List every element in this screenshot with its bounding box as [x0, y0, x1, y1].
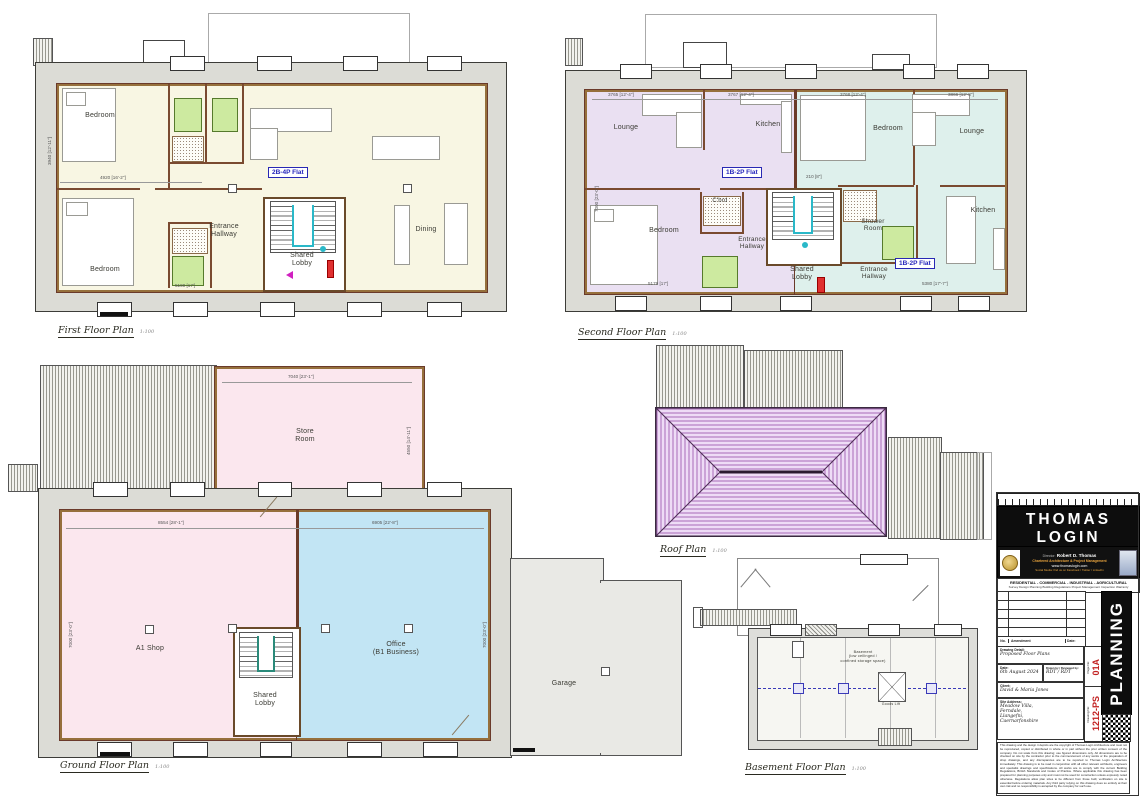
plan-caption: First Floor Plan1:100 [58, 325, 154, 336]
wall [940, 185, 1005, 187]
social-line: Social Media: find us on Facebook / Twit… [1020, 569, 1119, 573]
amendment-row [998, 610, 1085, 619]
room-label: C'brd [698, 198, 742, 205]
caption-scale: 1:100 [712, 548, 726, 554]
wall [916, 185, 918, 262]
window [780, 296, 812, 311]
drawing-sheet: Bedroom Bedroom Entrance Hallway Shared … [0, 0, 1142, 800]
bathroom-unit [212, 98, 238, 132]
dimension: 5190 [17'] [175, 283, 195, 288]
window [903, 64, 935, 79]
dimension: 210 [8"] [806, 174, 822, 179]
column [926, 683, 937, 694]
field-value: Proposed Floor Plans [1000, 652, 1081, 657]
room-label: A1 Shop [115, 645, 185, 653]
room-label: Bedroom [70, 112, 130, 120]
fire-alarm-icon [286, 271, 293, 279]
services: Survey Design Planning Building Regulati… [998, 585, 1139, 589]
adjacent-outline [977, 452, 992, 540]
door-opening [258, 482, 292, 497]
basement-note: Basement (low ceilinged / confined stora… [818, 650, 908, 663]
plan-caption: Roof Plan1:100 [660, 544, 727, 555]
basement-window [868, 624, 900, 636]
threshold [513, 748, 535, 752]
door-opening [260, 742, 292, 757]
window [347, 482, 382, 497]
stair-flight [257, 636, 275, 672]
window [423, 742, 458, 757]
drawing-no: 1212-PS [1091, 696, 1101, 731]
dimension: 7000 [23'-0"] [68, 622, 73, 648]
external-steps [8, 464, 38, 492]
bed [800, 95, 866, 161]
dim-line [222, 382, 412, 383]
room-label: Store Room [275, 428, 335, 444]
dimension: 6905 [22'-8"] [372, 520, 398, 525]
window [347, 742, 382, 757]
flat-type-badge: 1B-2P Flat [895, 258, 935, 269]
window [620, 64, 652, 79]
stair-landing [693, 607, 703, 628]
firm-name: THOMAS LOGIN [998, 511, 1139, 547]
amendment-row [998, 601, 1085, 610]
goods-lift [878, 672, 906, 702]
room-label: Shared Lobby [237, 692, 293, 708]
caption-scale: 1:100 [140, 329, 154, 335]
crest-icon [1119, 550, 1137, 576]
stair-flight [793, 196, 813, 234]
field-value: Meadow Villa, Ferndale, Llangefni, Caern… [1000, 704, 1081, 724]
basement-window [770, 624, 802, 636]
external-stack [565, 38, 583, 66]
dimension: 3940 [12'-11"] [47, 137, 52, 165]
caption-title: Basement Floor Plan [745, 762, 846, 775]
adjacent-roof [656, 345, 744, 409]
window [785, 64, 817, 79]
director-label: Director: [1043, 554, 1056, 558]
wall [168, 162, 244, 164]
drawn-field: Drawn by / Reviewed by: RDT / RDT [1043, 664, 1084, 682]
window [257, 56, 292, 71]
roof-outline [208, 13, 410, 65]
window [427, 56, 462, 71]
col-date: Date: [1066, 639, 1085, 643]
dimension: 5179 [17'] [648, 281, 668, 286]
lift-label: Goods Lift [866, 702, 916, 706]
dimension: 3765 [12'-4"] [608, 92, 634, 97]
amendment-table: No. Amendment Date: [997, 591, 1086, 648]
gold-seal-icon [1002, 555, 1018, 571]
wall [205, 84, 207, 162]
sofa [676, 112, 702, 148]
wall [168, 84, 170, 188]
window [170, 482, 205, 497]
adjacent-roof [744, 350, 843, 409]
amendment-row [998, 592, 1085, 601]
room-label: Shower Room [848, 218, 898, 233]
dimension: 5380 [17'-7"] [922, 281, 948, 286]
plan-caption: Second Floor Plan1:100 [578, 327, 687, 338]
firm-info: Director: Robert D. Thomas Chartered Arc… [997, 546, 1140, 580]
window [615, 296, 647, 311]
room-label: Kitchen [746, 121, 790, 129]
caption-title: First Floor Plan [58, 325, 134, 338]
hipped-roof [655, 407, 887, 537]
fuse-box [792, 641, 804, 658]
column-marker [403, 184, 412, 193]
blocked-opening [805, 624, 837, 636]
amendment-row [998, 619, 1085, 628]
room-label: Entrance Hallway [846, 266, 902, 281]
wall [57, 188, 140, 190]
drawing-no-label: Drawing No: [1086, 706, 1090, 723]
sofa [372, 136, 440, 160]
adjacent-roof [888, 437, 942, 539]
wall [838, 185, 914, 187]
wall [155, 188, 262, 190]
wall [585, 188, 700, 190]
wall [720, 188, 766, 190]
bathroom-unit [172, 256, 204, 286]
caption-title: Ground Floor Plan [60, 760, 149, 773]
room-label: Office (B1 Business) [358, 641, 434, 657]
wall [242, 84, 244, 162]
shower-tray [172, 136, 204, 162]
room-label: Garage [532, 680, 596, 688]
column-marker [601, 667, 610, 676]
room-label: Entrance Hallway [726, 236, 778, 251]
qr-code [1102, 714, 1131, 742]
caption-scale: 1:100 [155, 764, 169, 770]
sensor-dot [802, 242, 808, 248]
caption-title: Roof Plan [660, 544, 706, 557]
sideboard [394, 205, 410, 265]
scale-ruler [997, 493, 1140, 506]
column-marker [145, 625, 154, 634]
room-label: Kitchen [958, 207, 1008, 215]
wall [168, 222, 170, 288]
window [173, 302, 208, 317]
bathroom-unit [174, 98, 202, 132]
dimension: 7000 [23'-0"] [594, 186, 599, 212]
window [700, 296, 732, 311]
column-marker [228, 624, 237, 633]
dimension: 4550 [14'-11"] [406, 427, 411, 455]
firm-banner: THOMAS LOGIN ARCHITECTURE [997, 506, 1140, 548]
dim-line [592, 99, 998, 100]
window [900, 296, 932, 311]
planning-text: PLANNING [1107, 601, 1127, 706]
window [260, 302, 295, 317]
sofa [250, 128, 278, 160]
garage-body [510, 558, 604, 756]
room-label: Dining [404, 226, 448, 234]
window [347, 302, 382, 317]
dimension: 7040 [23'-1"] [288, 374, 314, 379]
wall [700, 232, 744, 234]
page-no: 01A [1091, 659, 1101, 676]
flat-type-badge: 2B-4P Flat [268, 167, 308, 178]
dimension: 8554 [28'-1"] [158, 520, 184, 525]
field-value: 6th August 2024 [1000, 670, 1040, 675]
column-marker [321, 624, 330, 633]
room-label: Bedroom [75, 266, 135, 274]
dimension: 3767 [12'-4"] [728, 92, 754, 97]
col-amendment: Amendment [1009, 639, 1066, 643]
stair-flight [292, 205, 314, 247]
room-label: Bedroom [858, 125, 918, 133]
dimension: 3768 [12'-4"] [840, 92, 866, 97]
column [838, 683, 849, 694]
window [958, 296, 990, 311]
plan-caption: Ground Floor Plan1:100 [60, 760, 169, 771]
dim-line [60, 182, 202, 183]
basement-window [934, 624, 962, 636]
dimension: 3866 [12'-8"] [948, 92, 974, 97]
field-value: RDT / RDT [1046, 670, 1081, 675]
caption-scale: 1:100 [672, 331, 686, 337]
caption-title: Second Floor Plan [578, 327, 666, 340]
seal-logo [1000, 550, 1020, 576]
window [700, 64, 732, 79]
dimension: 7000 [23'-0"] [482, 622, 487, 648]
room-label: Entrance Hallway [196, 223, 252, 239]
room-label: Shared Lobby [774, 266, 830, 282]
window-sill [100, 312, 128, 316]
internal-stair [878, 728, 912, 746]
wall [742, 192, 744, 232]
pillow [66, 92, 86, 106]
client-field: Client: David & Maria Jones [997, 682, 1084, 698]
amendment-header: No. Amendment Date: [998, 637, 1085, 645]
window [427, 302, 462, 317]
dimension: 4920 [16'-2"] [100, 175, 126, 180]
planning-banner: PLANNING [1101, 591, 1132, 715]
party-wall [794, 90, 797, 188]
bathroom-unit [702, 256, 738, 288]
window-sill [100, 752, 130, 756]
room-label: Shared Lobby [274, 252, 330, 268]
director-name: Robert D. Thomas [1057, 553, 1097, 558]
canopy-hatch [40, 365, 217, 493]
room-label: Lounge [598, 124, 654, 132]
column-marker [404, 624, 413, 633]
window [343, 56, 378, 71]
dim-line [66, 528, 484, 529]
plan-caption: Basement Floor Plan1:100 [745, 762, 866, 773]
date-field: Date: 6th August 2024 [997, 664, 1043, 682]
room-label: Bedroom [636, 227, 692, 235]
window [957, 64, 989, 79]
window [93, 482, 128, 497]
caption-scale: 1:100 [852, 766, 866, 772]
kitchen-counter [993, 228, 1005, 270]
col-no: No. [998, 639, 1009, 643]
site-field: Site Address: Meadow Villa, Ferndale, Ll… [997, 698, 1084, 740]
field-value: David & Maria Jones [1000, 688, 1081, 693]
room-label: Lounge [944, 128, 1000, 136]
window [170, 56, 205, 71]
amendment-row [998, 628, 1085, 637]
window [860, 554, 908, 565]
window [427, 482, 462, 497]
window [173, 742, 208, 757]
disclaimer-box: This drawing and the design it depicts a… [997, 742, 1130, 794]
flat-type-badge: 1B-2P Flat [722, 167, 762, 178]
title-block: THOMAS LOGIN ARCHITECTURE Director: Robe… [995, 488, 1140, 796]
column [793, 683, 804, 694]
column-marker [228, 184, 237, 193]
disclaimer-text: This drawing and the design it depicts a… [1000, 744, 1127, 789]
page-no-label: Page No: [1086, 661, 1090, 674]
pillow [66, 202, 88, 216]
garage-body [600, 580, 682, 756]
drawing-detail-field: Drawing Detail: Proposed Floor Plans [997, 646, 1084, 664]
